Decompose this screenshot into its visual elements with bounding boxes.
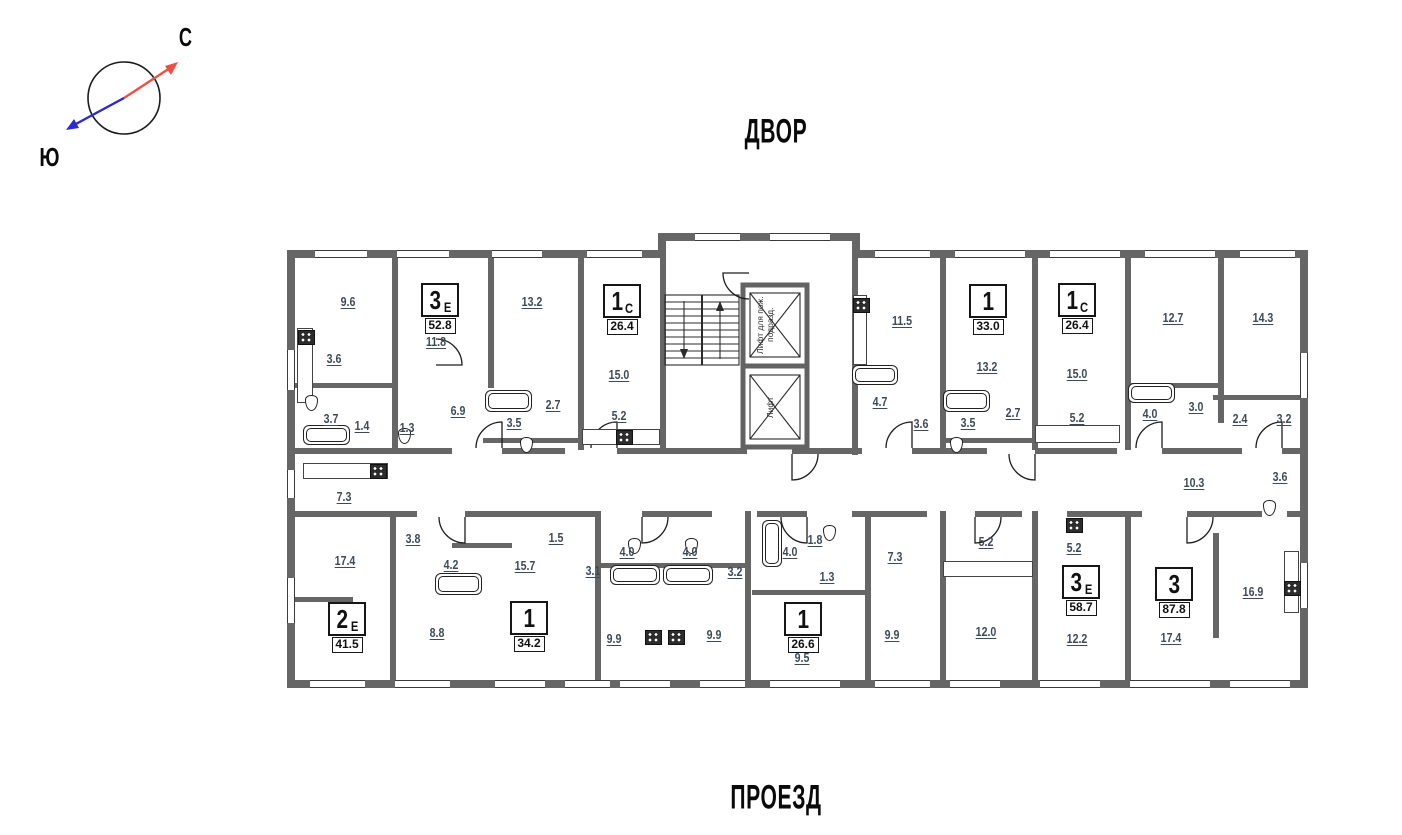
room-area-label: 3.0 — [1189, 400, 1204, 414]
room-area-label: 1.8 — [808, 533, 823, 547]
apartment-type: 1 — [510, 601, 548, 635]
courtyard-label: ДВОР — [745, 113, 808, 152]
room-area-label: 3.1 — [586, 564, 601, 578]
room-area-label: 14.3 — [1253, 311, 1274, 325]
room-area-label: 3.2 — [728, 565, 743, 579]
driveway-label: ПРОЕЗД — [730, 779, 821, 818]
room-area-label: 5.2 — [1070, 411, 1085, 425]
room-area-label: 12.0 — [976, 625, 997, 639]
room-area-label: 6.9 — [451, 404, 466, 418]
apartment-total-area: 26.6 — [788, 637, 819, 653]
room-area-label: 3.6 — [914, 417, 929, 431]
floor-plan-page: С Ю ДВОР ПРОЕЗД — [0, 0, 1402, 835]
apartment-badge: 387.8 — [1155, 567, 1193, 618]
room-area-label: 3.5 — [507, 416, 522, 430]
apartment-total-area: 52.8 — [425, 318, 456, 334]
kitchen-counter — [1035, 425, 1120, 443]
room-area-label: 3.5 — [961, 416, 976, 430]
building-plan: Лифт для пож. подразд. Лифт — [287, 233, 1308, 688]
stove-icon — [298, 330, 315, 345]
room-area-label: 3.8 — [406, 532, 421, 546]
room-area-label: 15.0 — [609, 368, 630, 382]
room-area-label: 12.2 — [1067, 632, 1088, 646]
apartment-type: 2Е — [328, 602, 366, 636]
stove-icon — [645, 630, 662, 645]
bathtub-icon — [1128, 383, 1175, 403]
room-area-label: 1.4 — [355, 419, 370, 433]
room-area-label: 9.9 — [707, 628, 722, 642]
bathtub-icon — [762, 520, 782, 567]
room-area-label: 16.9 — [1243, 585, 1264, 599]
room-area-label: 7.3 — [337, 490, 352, 504]
compass-south-label: Ю — [39, 142, 59, 173]
apartment-type: 1С — [603, 284, 641, 318]
apartment-total-area: 34.2 — [514, 636, 545, 652]
room-area-label: 4.0 — [783, 545, 798, 559]
room-area-label: 11.8 — [426, 335, 446, 349]
apartment-badge: 134.2 — [510, 601, 548, 652]
room-area-label: 5.2 — [1067, 541, 1082, 555]
apartment-total-area: 33.0 — [973, 319, 1004, 335]
stove-icon — [1066, 518, 1083, 533]
room-area-label: 12.7 — [1163, 311, 1184, 325]
room-area-label: 13.2 — [977, 360, 998, 374]
bathtub-icon — [663, 565, 713, 585]
room-area-label: 13.2 — [522, 295, 543, 309]
apartment-badge: 1С26.4 — [603, 284, 641, 335]
room-area-label: 4.0 — [1143, 407, 1158, 421]
room-area-label: 4.0 — [620, 545, 635, 559]
room-area-label: 1.5 — [549, 531, 564, 545]
compass-north-label: С — [179, 22, 192, 53]
room-area-label: 5.2 — [612, 409, 627, 423]
room-area-label: 1.3 — [400, 421, 415, 435]
room-area-label: 9.5 — [795, 651, 810, 665]
apartment-total-area: 41.5 — [332, 637, 363, 653]
apartment-badge: 3Е52.8 — [421, 283, 459, 334]
elevator-label: Лифт — [765, 383, 785, 431]
apartment-badge: 1С26.4 — [1058, 283, 1096, 334]
room-area-label: 15.7 — [515, 559, 536, 573]
room-area-label: 3.2 — [1277, 412, 1292, 426]
room-area-label: 11.5 — [892, 314, 912, 328]
stove-icon — [668, 630, 685, 645]
bathtub-icon — [610, 565, 660, 585]
room-area-label: 3.6 — [327, 352, 342, 366]
apartment-type: 3Е — [421, 283, 459, 317]
kitchen-counter — [943, 561, 1033, 577]
stove-icon — [616, 430, 633, 445]
room-area-label: 8.8 — [430, 626, 445, 640]
room-area-label: 4.7 — [873, 395, 888, 409]
stove-icon — [370, 464, 387, 479]
apartment-badge: 3Е58.7 — [1062, 565, 1100, 616]
apartment-total-area: 26.4 — [607, 319, 638, 335]
fire-elevator-label: Лифт для пож. подразд. — [755, 291, 795, 359]
room-area-label: 1.3 — [820, 570, 835, 584]
bathtub-icon — [303, 425, 350, 445]
apartment-type: 3Е — [1062, 565, 1100, 599]
bathtub-icon — [485, 390, 532, 412]
room-area-label: 15.0 — [1067, 367, 1088, 381]
compass-rose-icon — [38, 18, 238, 188]
apartment-badge: 126.6 — [784, 602, 822, 653]
room-area-label: 4.0 — [683, 545, 698, 559]
stove-icon — [853, 298, 870, 313]
room-area-label: 9.6 — [341, 295, 356, 309]
apartment-type: 1 — [969, 284, 1007, 318]
apartment-badge: 2Е41.5 — [328, 602, 366, 653]
room-area-label: 9.9 — [607, 632, 622, 646]
apartment-type: 3 — [1155, 567, 1193, 601]
apartment-total-area: 58.7 — [1066, 600, 1097, 616]
room-area-label: 2.7 — [1006, 406, 1021, 420]
room-area-label: 2.4 — [1233, 412, 1248, 426]
bathtub-icon — [852, 365, 898, 385]
apartment-type: 1 — [784, 602, 822, 636]
apartment-total-area: 87.8 — [1159, 602, 1190, 618]
apartment-total-area: 26.4 — [1062, 318, 1093, 334]
apartment-type: 1С — [1058, 283, 1096, 317]
room-area-label: 17.4 — [335, 554, 356, 568]
room-area-label: 4.2 — [444, 558, 459, 572]
bathtub-icon — [435, 573, 482, 595]
stove-icon — [1284, 581, 1301, 596]
room-area-label: 17.4 — [1161, 631, 1182, 645]
room-area-label: 3.7 — [324, 412, 339, 426]
room-area-label: 5.2 — [979, 535, 994, 549]
apartment-badge: 133.0 — [969, 284, 1007, 335]
bathtub-icon — [943, 390, 990, 412]
room-area-label: 3.6 — [1273, 470, 1288, 484]
room-area-label: 7.3 — [888, 550, 903, 564]
room-area-label: 9.9 — [885, 628, 900, 642]
room-area-label: 2.7 — [546, 398, 561, 412]
room-area-label: 10.3 — [1184, 476, 1205, 490]
